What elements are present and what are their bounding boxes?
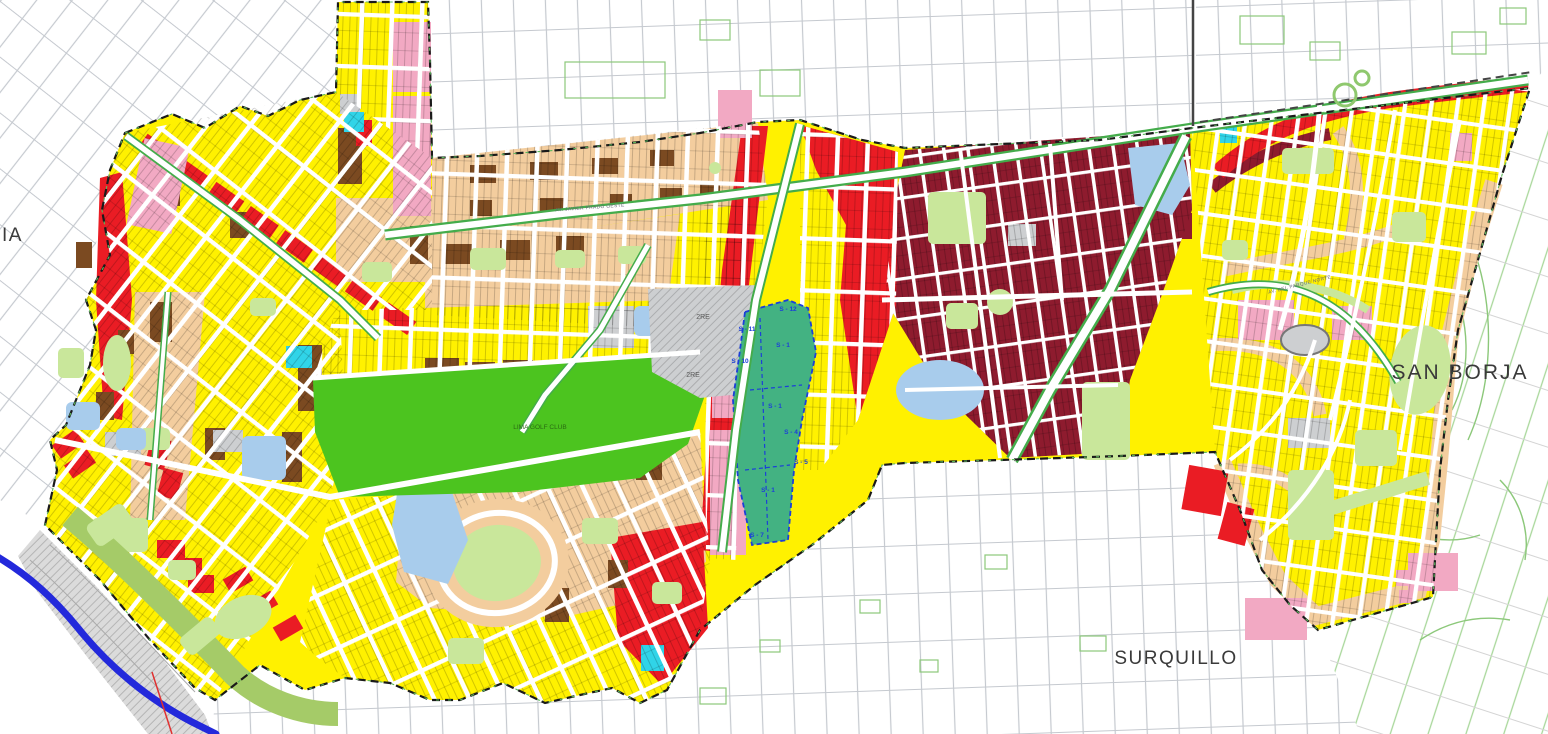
- sector-label: S - 10: [731, 358, 749, 365]
- map-shape: [448, 638, 484, 664]
- label-re-zone-b: 2RE: [686, 372, 700, 379]
- map-shape: [103, 335, 131, 391]
- map-viewport: SAN BORJA SURQUILLO IA LIMA GOLF CLUB 2R…: [0, 0, 1548, 734]
- map-shape: [116, 428, 146, 450]
- map-shape: [928, 192, 986, 244]
- map-shape: [1181, 465, 1228, 516]
- sector-label: S - 7: [750, 532, 764, 539]
- label-lima-golf-club: LIMA GOLF CLUB: [513, 424, 566, 431]
- sector-label: S - 11: [739, 326, 756, 333]
- label-west-district-partial: IA: [2, 225, 23, 246]
- zoning-map: SAN BORJA SURQUILLO IA LIMA GOLF CLUB 2R…: [0, 0, 1548, 734]
- map-shape: [58, 348, 84, 378]
- map-shape: [555, 250, 585, 268]
- sector-label: S - 4: [784, 429, 798, 436]
- label-san-borja: SAN BORJA: [1391, 361, 1528, 384]
- map-shape: [582, 518, 618, 544]
- sector-label: S - 1: [768, 403, 782, 410]
- map-shape: [76, 242, 92, 268]
- sector-label: S - 5: [794, 459, 808, 466]
- map-shape: [1392, 212, 1426, 242]
- label-re-zone-a: 2RE: [696, 314, 710, 321]
- map-shape: [470, 248, 506, 270]
- sector-label: S - 1: [761, 487, 775, 494]
- sector-label: S - 1: [776, 342, 790, 349]
- map-shape: [1082, 382, 1130, 460]
- map-shape: [168, 560, 196, 580]
- map-shape: [652, 582, 682, 604]
- map-shape: [362, 262, 392, 282]
- map-shape: [1281, 325, 1329, 355]
- label-surquillo: SURQUILLO: [1114, 648, 1237, 669]
- map-shape: [250, 298, 276, 316]
- map-shape: [946, 303, 978, 329]
- ovalo-park: [709, 162, 721, 174]
- sector-label: S - 12: [779, 306, 797, 313]
- map-shape: [1222, 240, 1248, 260]
- map-shape: [66, 402, 100, 430]
- map-shape: [1282, 148, 1334, 174]
- map-shape: [1355, 430, 1397, 466]
- park-circle: [987, 289, 1013, 315]
- map-shape: [242, 436, 286, 480]
